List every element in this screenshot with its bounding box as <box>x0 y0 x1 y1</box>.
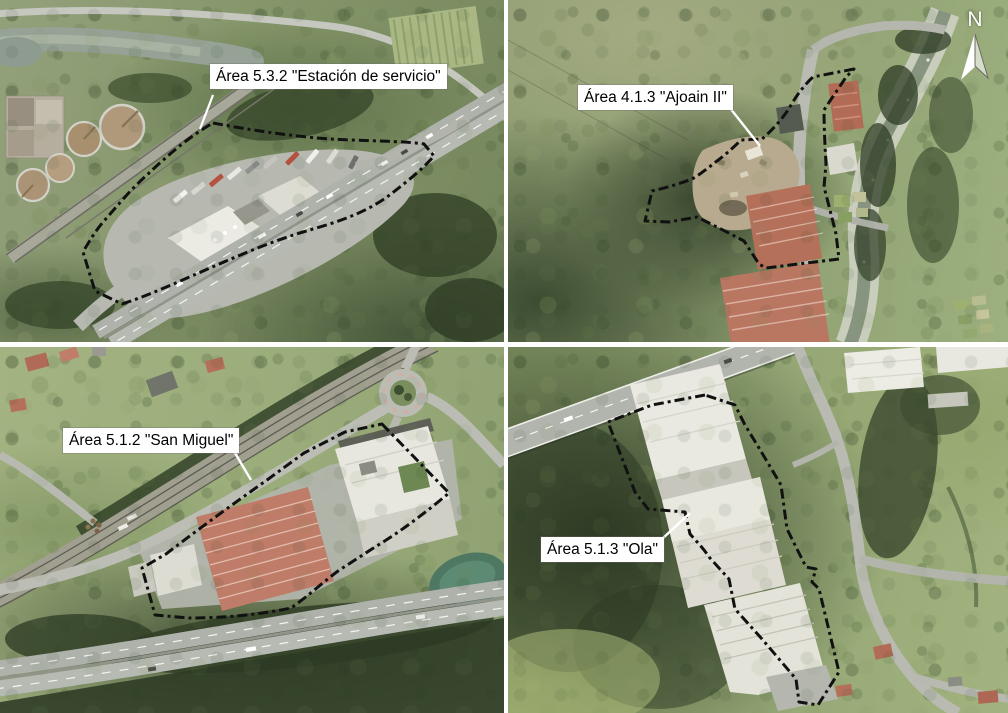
label-leader-line <box>662 513 690 539</box>
panel-ola-annotations-svg <box>508 347 1008 713</box>
label-leader-line <box>200 95 213 129</box>
north-arrow-icon <box>962 34 988 78</box>
panel-estacion-de-servicio: Área 5.3.2 "Estación de servicio" <box>0 0 504 342</box>
label-leader-line <box>730 108 760 146</box>
panel-sanmiguel-annotations-svg <box>0 347 504 713</box>
panel-ajoain-annotations-svg <box>508 0 1008 342</box>
area-label-estacion: Área 5.3.2 "Estación de servicio" <box>210 64 447 89</box>
area-label-san-miguel: Área 5.1.2 "San Miguel" <box>63 428 239 453</box>
panel-ajoain-ii: N Área 4.1.3 "Ajoain II" <box>508 0 1008 342</box>
area-label-ajoain: Área 4.1.3 "Ajoain II" <box>578 85 733 110</box>
panel-ola: Área 5.1.3 "Ola" <box>508 347 1008 713</box>
area-label-ola: Área 5.1.3 "Ola" <box>541 537 664 562</box>
panel-estacion-annotations-svg <box>0 0 504 342</box>
area-boundary-estacion <box>83 123 434 304</box>
orthophoto-figure: Área 5.3.2 "Estación de servicio" <box>0 0 1008 713</box>
north-arrow-label: N <box>960 8 990 32</box>
panel-san-miguel: Área 5.1.2 "San Miguel" <box>0 347 504 713</box>
